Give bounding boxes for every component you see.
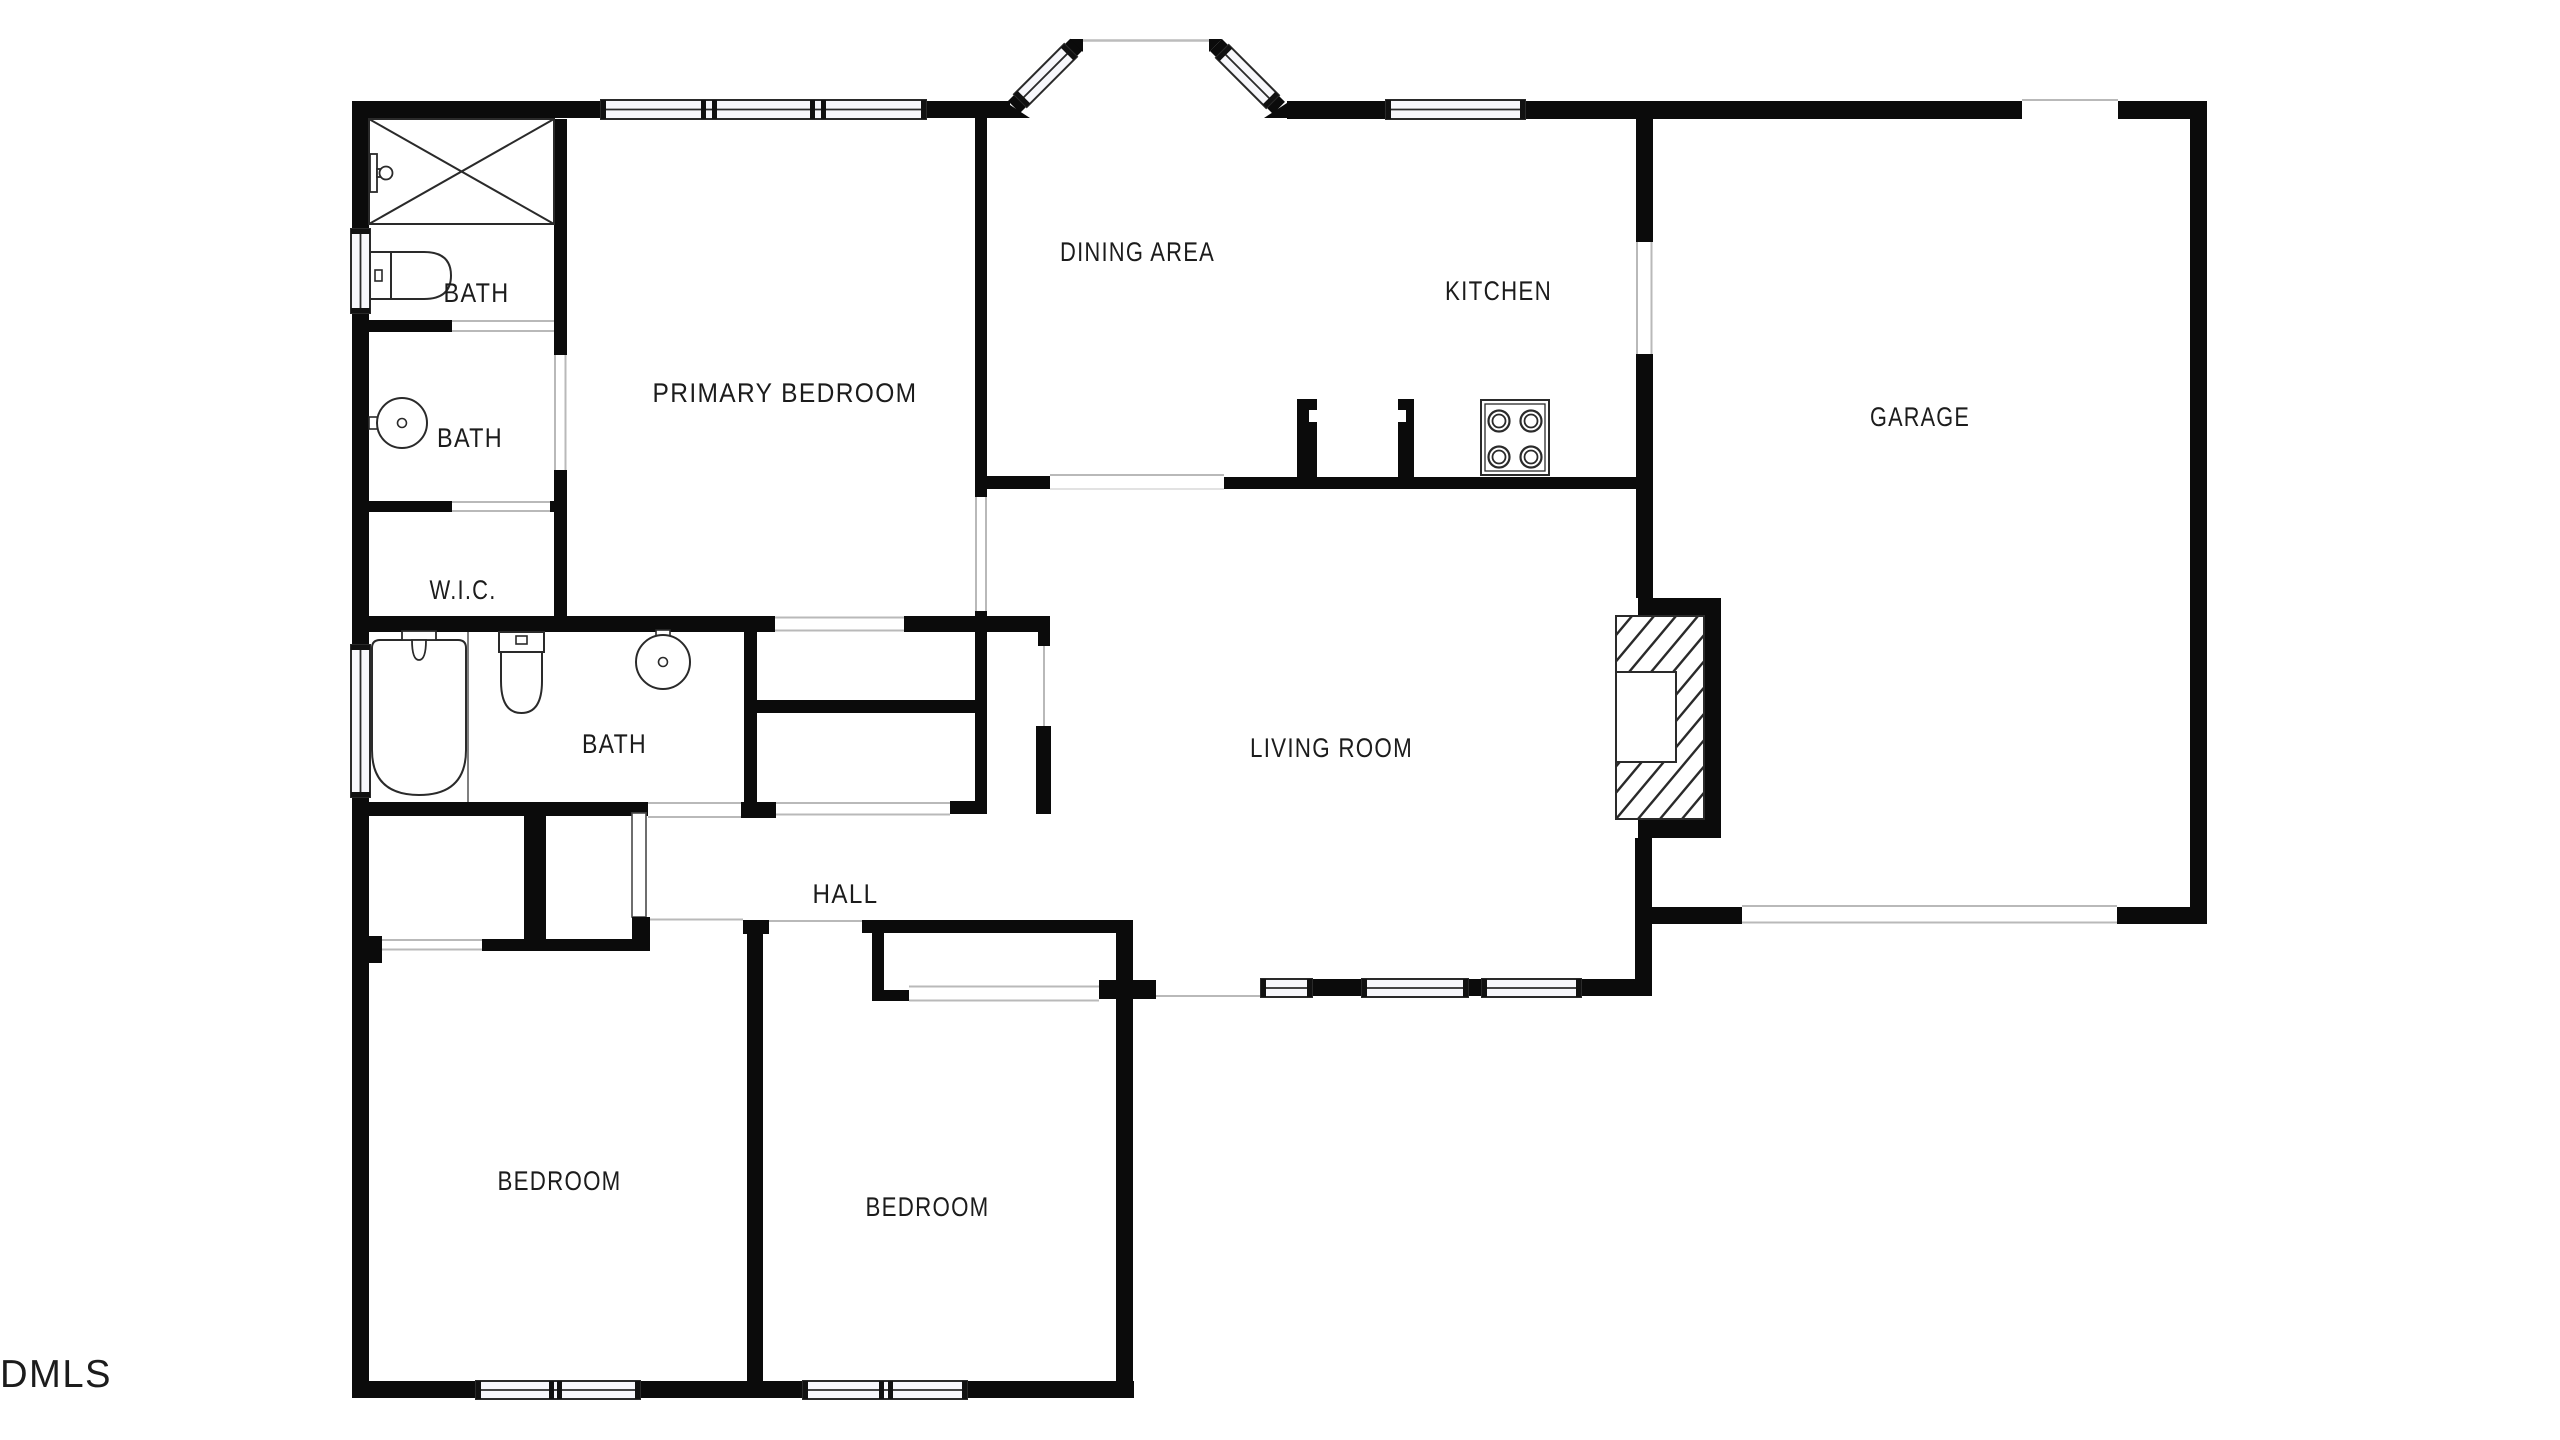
svg-text:BATH: BATH: [444, 278, 510, 308]
svg-text:KITCHEN: KITCHEN: [1445, 276, 1552, 306]
svg-text:PRIMARY BEDROOM: PRIMARY BEDROOM: [653, 378, 918, 408]
svg-text:W.I.C.: W.I.C.: [430, 575, 497, 605]
svg-text:BEDROOM: BEDROOM: [866, 1192, 990, 1222]
svg-text:BEDROOM: BEDROOM: [498, 1166, 622, 1196]
svg-text:DMLS: DMLS: [0, 1353, 112, 1396]
svg-text:GARAGE: GARAGE: [1870, 402, 1970, 432]
svg-text:HALL: HALL: [813, 879, 879, 909]
svg-text:DINING AREA: DINING AREA: [1060, 237, 1215, 267]
svg-text:LIVING ROOM: LIVING ROOM: [1250, 733, 1413, 763]
svg-text:BATH: BATH: [582, 729, 647, 759]
svg-text:BATH: BATH: [437, 423, 503, 453]
